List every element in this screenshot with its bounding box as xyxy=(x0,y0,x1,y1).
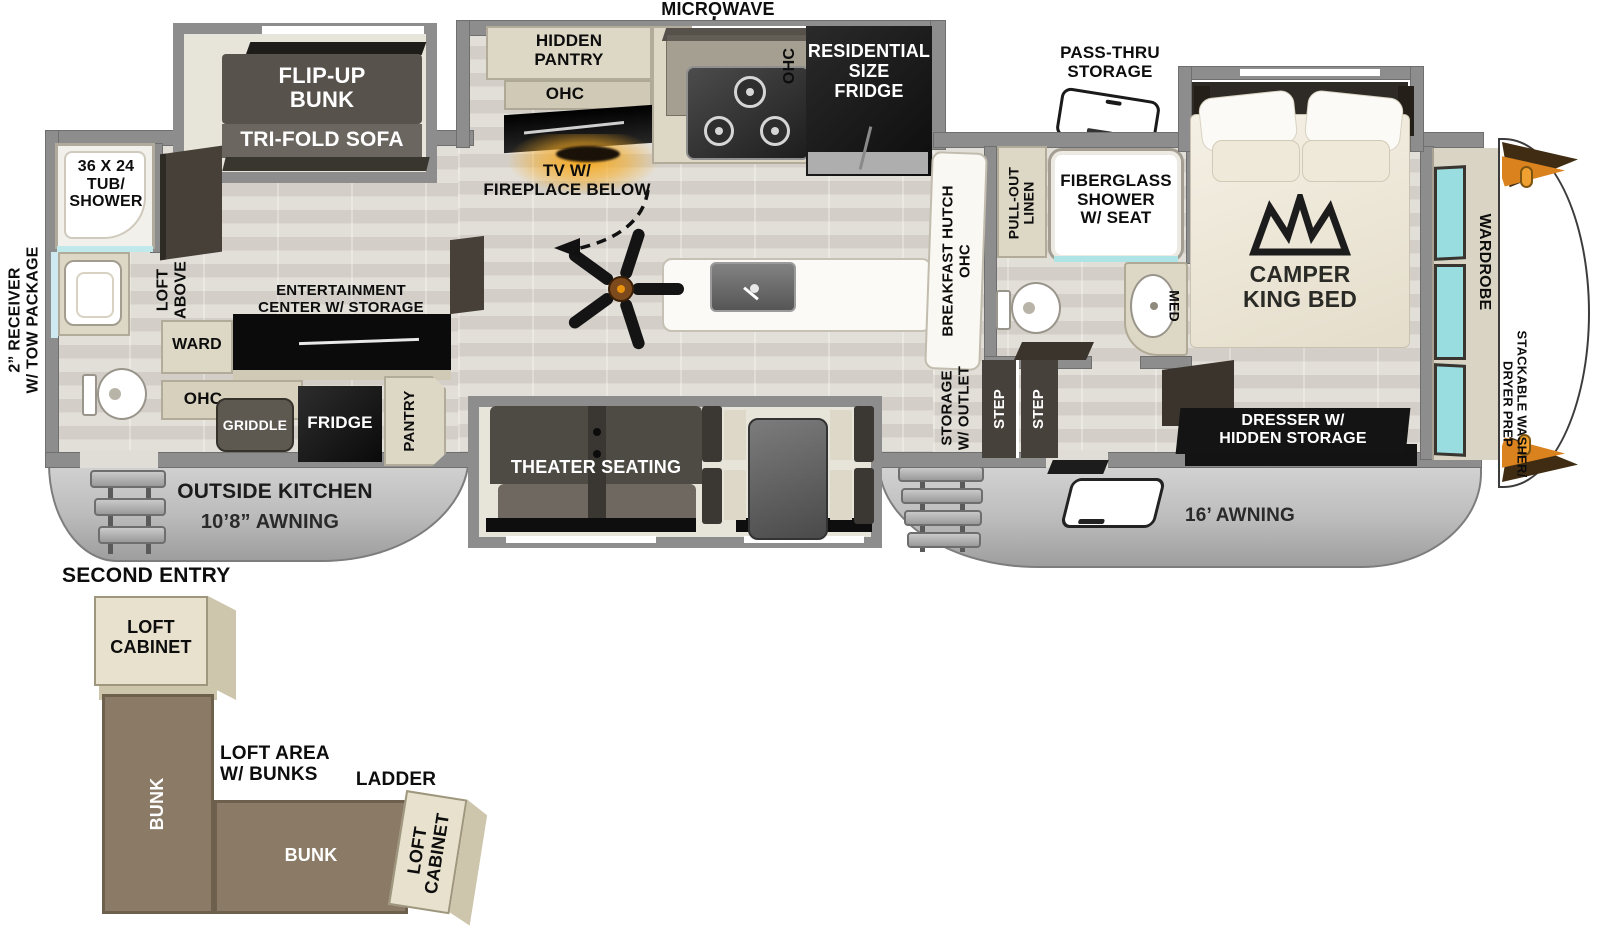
wardrobe-mirror-1 xyxy=(1434,165,1466,261)
breakfast-hutch-label: BREAKFAST HUTCH OHC xyxy=(941,156,974,366)
king-bed-label: CAMPER KING BED xyxy=(1222,262,1378,313)
threshold-mat-right xyxy=(1047,460,1109,474)
griddle-label: GRIDDLE xyxy=(218,418,292,433)
doorway-left xyxy=(80,450,158,468)
rear-bath-door xyxy=(160,146,222,261)
loft-cabinet-top-label: LOFT CABINET xyxy=(96,618,206,658)
receiver-label: 2” RECEIVER W/ TOW PACKAGE xyxy=(6,225,41,415)
loft-cabinet-bottom: LOFT CABINET xyxy=(387,790,491,926)
wardrobe-label: WARDROBE xyxy=(1475,182,1493,342)
tri-fold-sofa-label: TRI-FOLD SOFA xyxy=(232,128,412,151)
living-door xyxy=(450,236,484,314)
shower-label: FIBERGLASS SHOWER W/ SEAT xyxy=(1050,172,1182,228)
island-sink xyxy=(710,262,796,312)
range-ohc-label: OHC xyxy=(781,33,799,99)
loft-bunk-vertical-label: BUNK xyxy=(148,734,168,874)
loft-cabinet-top-side xyxy=(208,596,236,700)
wall-kitchen-right xyxy=(930,20,946,150)
tv-ohc-label: OHC xyxy=(510,85,620,104)
wardrobe-mirror-2 xyxy=(1434,264,1466,360)
flip-up-bunk-label: FLIP-UP BUNK xyxy=(252,64,392,112)
dinette-chair-1 xyxy=(702,406,722,462)
dinette-seat-4 xyxy=(830,470,852,520)
awning-left-label: 10’8” AWNING xyxy=(150,511,390,533)
outside-fridge-label: FRIDGE xyxy=(300,414,380,433)
dinette-seat-1 xyxy=(724,410,746,460)
step-2-label: STEP xyxy=(1031,364,1048,454)
second-entry-label: SECOND ENTRY xyxy=(62,564,252,587)
dinette-seat-3 xyxy=(830,410,852,460)
wall-kitchen-left xyxy=(456,20,470,148)
pillow-3 xyxy=(1212,140,1300,182)
dinette-chair-2 xyxy=(702,468,722,524)
entry-steps-right xyxy=(898,466,988,558)
dinette-chair-4 xyxy=(854,468,874,524)
washer-dryer-label: STACKABLE WASHER/ DRYER PREP xyxy=(1500,329,1529,479)
pass-thru-label: PASS-THRU STORAGE xyxy=(1035,44,1185,81)
loft-area-label: LOFT AREA W/ BUNKS xyxy=(220,744,356,786)
step-1-label: STEP xyxy=(992,364,1009,454)
dinette-chair-3 xyxy=(854,406,874,462)
theater-seating-label: THEATER SEATING xyxy=(496,458,696,478)
ward-label: WARD xyxy=(163,336,231,354)
entertainment-label: ENTERTAINMENT CENTER W/ STORAGE xyxy=(225,283,457,316)
ladder-label: LADDER xyxy=(346,770,446,791)
awning-right-label: 16’ AWNING xyxy=(1170,506,1310,527)
bath-toilet xyxy=(996,282,1062,336)
pillow-4 xyxy=(1302,140,1390,182)
rv-floorplan: OUTSIDE KITCHEN 10’8” AWNING 16’ AWNING … xyxy=(0,0,1600,928)
storage-outlet-label: STORAGE W/ OUTLET xyxy=(940,353,973,463)
outside-kitchen-label: OUTSIDE KITCHEN xyxy=(135,480,415,503)
loft-bunk-horizontal-label: BUNK xyxy=(246,846,376,866)
bunk-slideout-window xyxy=(262,26,424,34)
cap-marker-top xyxy=(1520,166,1533,188)
dinette-table xyxy=(748,418,828,540)
entertainment-center xyxy=(233,314,451,370)
tub-shower-label: 36 X 24 TUB/ SHOWER xyxy=(60,158,152,211)
slide-window-strip-1 xyxy=(506,536,656,543)
pull-out-linen-label: PULL-OUT LINEN xyxy=(1007,151,1038,255)
dinette-seat-2 xyxy=(724,470,746,520)
rear-window-strip xyxy=(51,252,58,338)
fireplace-ember xyxy=(556,146,620,162)
bed-slideout-window xyxy=(1240,69,1380,76)
crown-icon xyxy=(1244,194,1356,258)
hidden-pantry-label: HIDDEN PANTRY xyxy=(486,32,652,69)
pantry-label: PANTRY xyxy=(402,379,419,463)
wardrobe-mirror-3 xyxy=(1434,363,1466,457)
residential-fridge-label: RESIDENTIAL SIZE FRIDGE xyxy=(806,42,932,101)
med-label: MED xyxy=(1166,276,1181,336)
rear-toilet xyxy=(82,368,148,422)
dashed-arrow xyxy=(544,184,664,274)
slide-window-band-1 xyxy=(486,518,696,532)
dresser-label: DRESSER W/ HIDDEN STORAGE xyxy=(1180,412,1406,447)
sofa-front-edge xyxy=(222,157,429,171)
microwave-label: MICROWAVE xyxy=(648,0,788,20)
rear-sink xyxy=(64,260,122,326)
entry-steps-left xyxy=(90,470,170,562)
entry-door xyxy=(1060,478,1166,528)
bath-counter-dark xyxy=(1014,342,1094,360)
kitchen-island xyxy=(662,258,932,332)
entry-door-handle-icon xyxy=(1078,519,1105,524)
wall-top-bedroom-1 xyxy=(933,132,1193,148)
